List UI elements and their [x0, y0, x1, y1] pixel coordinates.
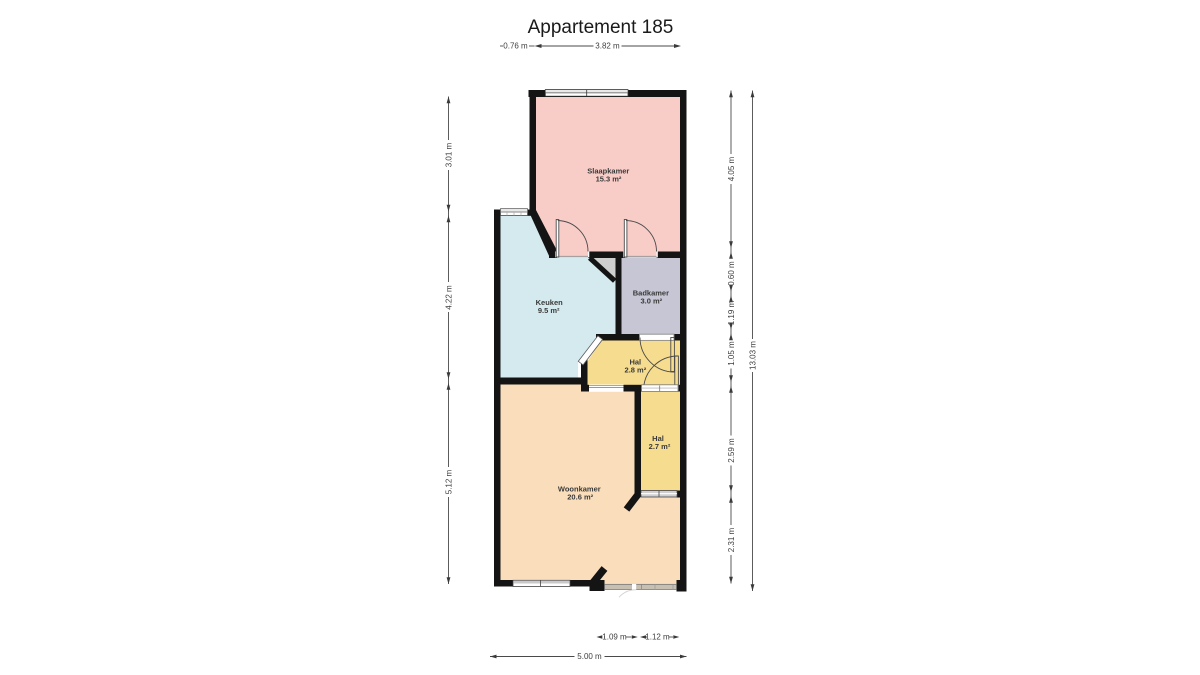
svg-text:0.60 m: 0.60 m: [727, 261, 736, 286]
svg-text:5.00 m: 5.00 m: [577, 652, 602, 661]
svg-text:1.19 m: 1.19 m: [727, 300, 736, 325]
svg-text:2.7 m²: 2.7 m²: [649, 442, 671, 451]
svg-text:3.01 m: 3.01 m: [444, 142, 453, 167]
svg-text:3.0 m²: 3.0 m²: [640, 296, 662, 305]
svg-text:20.6 m²: 20.6 m²: [567, 492, 593, 501]
svg-text:0.76 m: 0.76 m: [503, 42, 528, 51]
svg-text:1.12 m: 1.12 m: [645, 633, 670, 642]
svg-text:3.82 m: 3.82 m: [595, 42, 620, 51]
svg-text:1.09 m: 1.09 m: [602, 633, 627, 642]
svg-text:2.31 m: 2.31 m: [727, 527, 736, 552]
svg-text:4.05 m: 4.05 m: [727, 156, 736, 181]
svg-text:13.03 m: 13.03 m: [748, 341, 757, 370]
svg-text:4.22 m: 4.22 m: [444, 285, 453, 310]
svg-text:Appartement 185: Appartement 185: [528, 17, 674, 38]
svg-text:2.59 m: 2.59 m: [727, 438, 736, 463]
svg-text:1.05 m: 1.05 m: [727, 341, 736, 366]
svg-text:2.8 m²: 2.8 m²: [625, 365, 647, 374]
svg-text:9.5 m²: 9.5 m²: [538, 306, 560, 315]
svg-text:5.12 m: 5.12 m: [444, 469, 453, 494]
svg-text:15.3 m²: 15.3 m²: [596, 174, 622, 183]
